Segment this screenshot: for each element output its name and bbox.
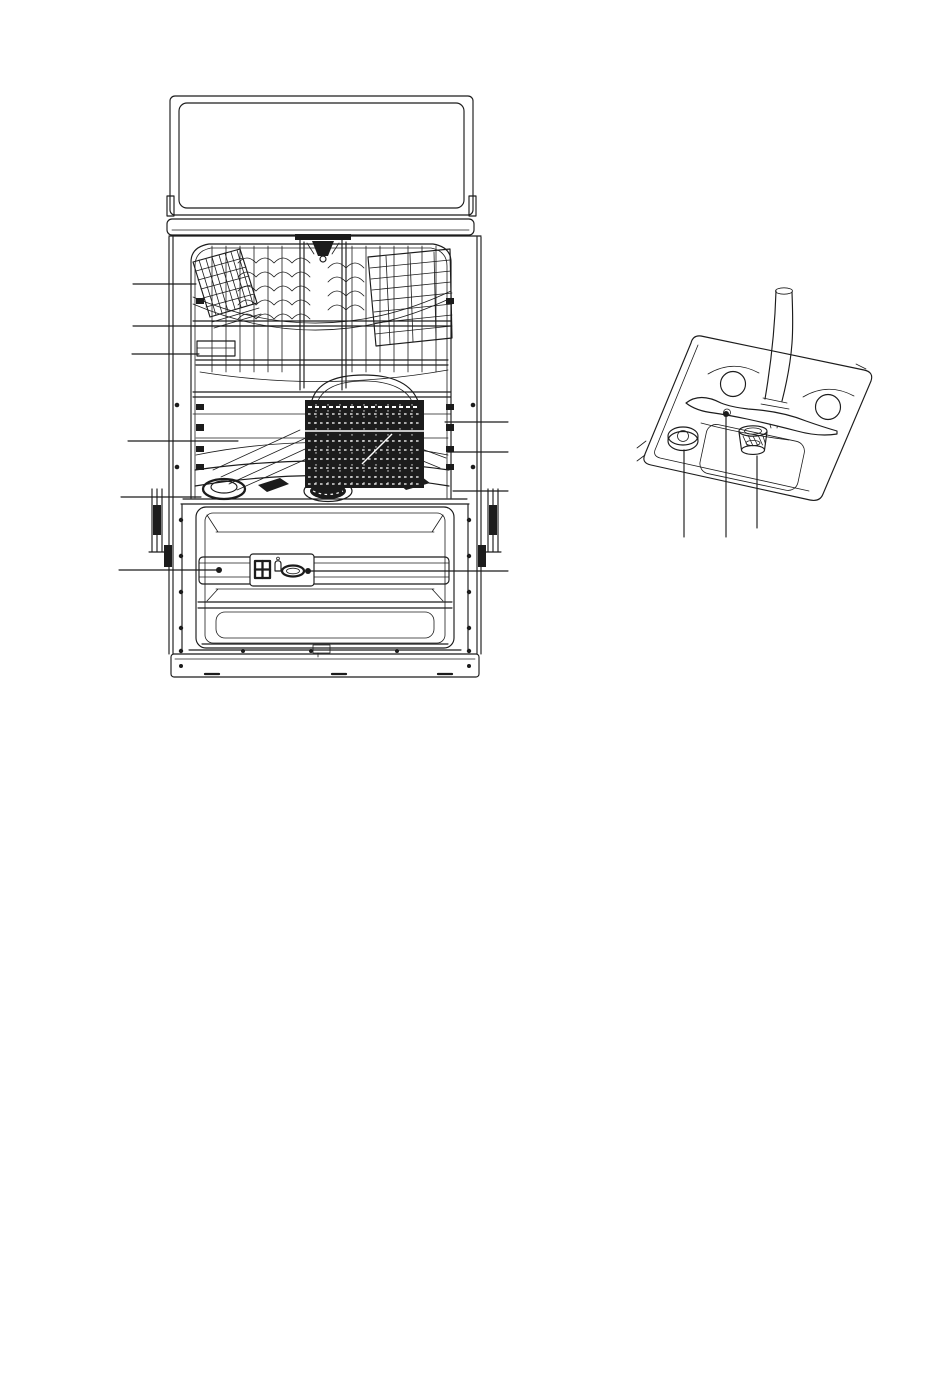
water-softener-cap <box>668 427 698 451</box>
main-figure <box>149 96 501 677</box>
top-spray-head <box>295 234 351 390</box>
door-top-panel <box>167 96 476 216</box>
manual-page <box>0 0 950 1392</box>
plate-tine-rows <box>238 258 364 319</box>
callout-dot-rinse-aid-dispenser <box>305 568 311 574</box>
water-inlet-pipe <box>761 288 793 428</box>
control-bar <box>167 219 474 235</box>
dishwasher-parts-diagram <box>0 0 950 1392</box>
detergent-dispenser <box>199 554 449 586</box>
callout-dot-lower-spray-arm-detail <box>723 411 729 417</box>
door-screws <box>179 518 471 653</box>
sump-recess <box>698 423 806 493</box>
callout-dot-detergent-dispenser <box>216 567 222 573</box>
detail-figure <box>637 288 872 501</box>
right-plate-rack <box>368 249 452 346</box>
well-left <box>708 366 759 396</box>
well-right <box>803 389 854 419</box>
door-liner <box>189 507 461 650</box>
